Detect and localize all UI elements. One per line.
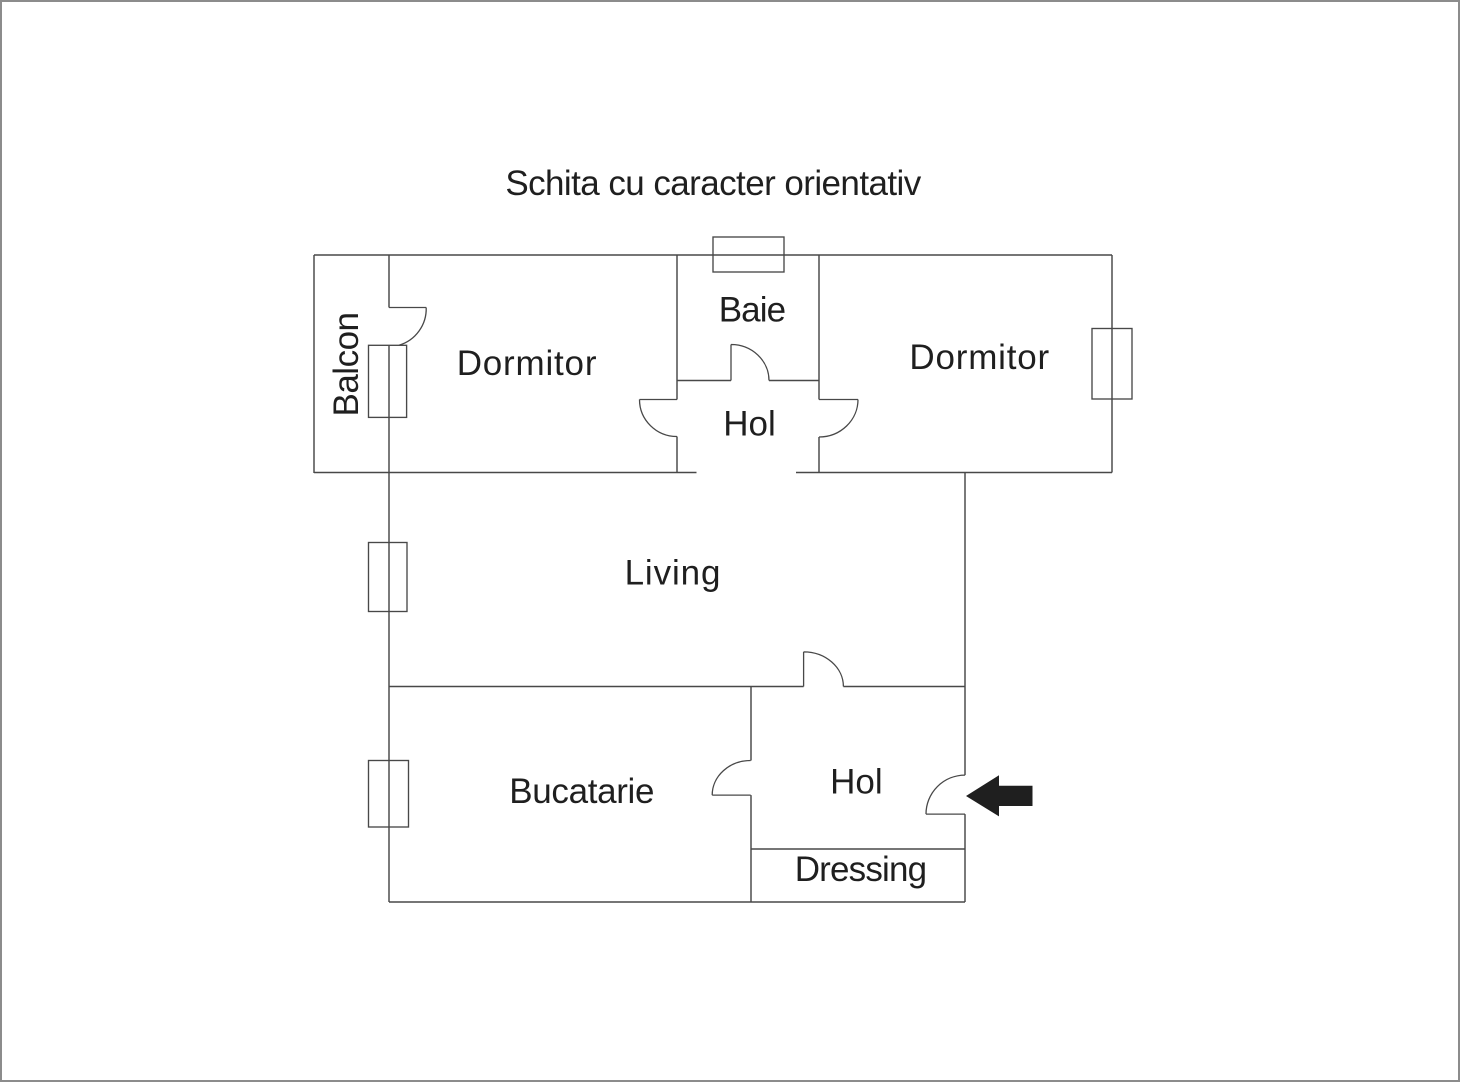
svg-text:Dressing: Dressing: [795, 850, 927, 889]
svg-text:Bucatarie: Bucatarie: [509, 772, 654, 811]
svg-text:Dormitor: Dormitor: [909, 338, 1050, 377]
svg-text:Dormitor: Dormitor: [457, 344, 598, 383]
svg-text:Hol: Hol: [723, 404, 776, 443]
svg-text:Baie: Baie: [719, 291, 786, 330]
svg-text:Balcon: Balcon: [327, 312, 366, 416]
svg-text:Schita cu caracter orientativ: Schita cu caracter orientativ: [505, 164, 921, 203]
svg-text:Hol: Hol: [830, 763, 883, 802]
svg-text:Living: Living: [625, 554, 722, 593]
